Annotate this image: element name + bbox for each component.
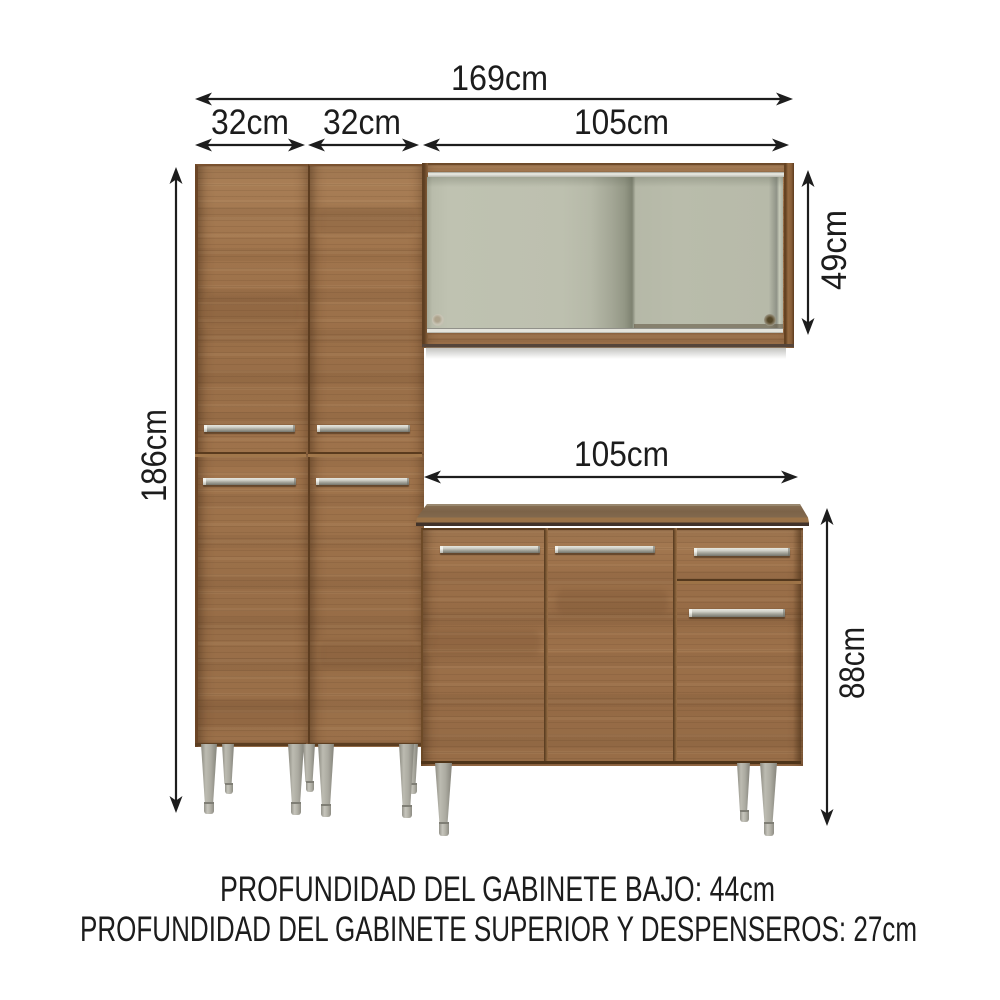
svg-text:PROFUNDIDAD DEL GABINETE BAJO:: PROFUNDIDAD DEL GABINETE BAJO: 44cm [220,870,775,909]
svg-text:32cm: 32cm [323,103,401,142]
svg-text:105cm: 105cm [574,435,669,474]
svg-text:105cm: 105cm [574,103,669,142]
svg-text:186cm: 186cm [135,409,174,502]
svg-text:49cm: 49cm [815,210,854,290]
svg-text:PROFUNDIDAD DEL GABINETE SUPER: PROFUNDIDAD DEL GABINETE SUPERIOR Y DESP… [80,910,917,949]
svg-text:169cm: 169cm [451,59,548,98]
svg-text:32cm: 32cm [211,103,289,142]
svg-text:88cm: 88cm [833,627,872,699]
